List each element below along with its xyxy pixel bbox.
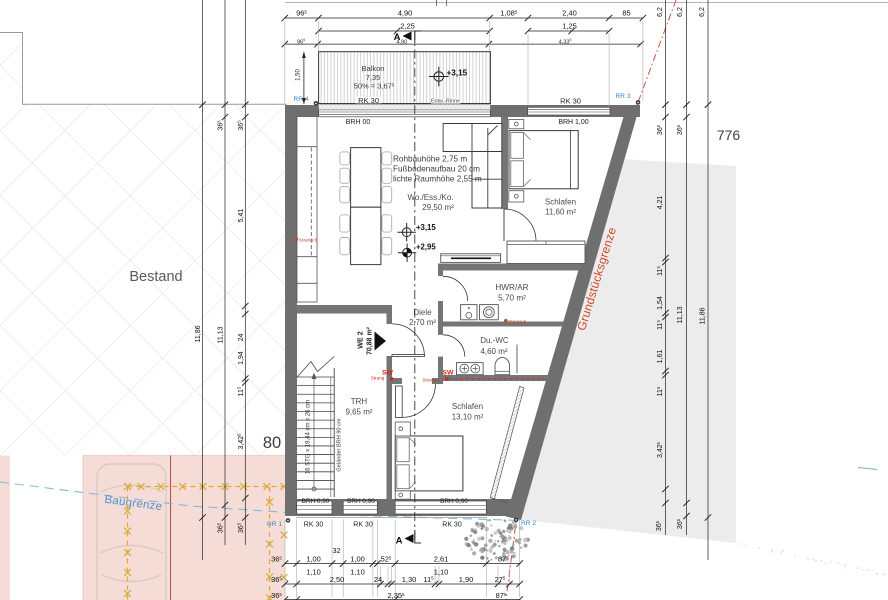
svg-text:+3,15: +3,15 [447,69,468,78]
svg-text:BRH 0,90: BRH 0,90 [347,498,375,505]
svg-text:24: 24 [238,334,245,342]
svg-text:4,90: 4,90 [398,9,413,18]
svg-text:1,10: 1,10 [350,568,365,577]
svg-text:Diele: Diele [413,308,432,317]
svg-text:32: 32 [332,546,340,555]
svg-text:11,13: 11,13 [677,306,684,323]
svg-text:1,54: 1,54 [657,296,664,310]
svg-text:Strang 6: Strang 6 [299,238,317,244]
svg-text:RR 4: RR 4 [293,96,308,103]
svg-text:1,90: 1,90 [459,575,474,584]
svg-text:4,90: 4,90 [396,39,407,45]
svg-text:1,61: 1,61 [657,350,664,364]
svg-text:WE 2: WE 2 [356,331,365,349]
svg-text:5,70 m²: 5,70 m² [498,294,526,303]
svg-text:Strang: Strang [371,376,385,381]
svg-text:1,50: 1,50 [296,69,302,81]
svg-text:1,10: 1,10 [306,568,321,577]
svg-text:TRH: TRH [351,397,368,406]
svg-text:11,13: 11,13 [218,326,225,343]
svg-text:BRH 0,90: BRH 0,90 [440,498,468,505]
svg-text:4,21: 4,21 [657,196,664,210]
svg-text:A: A [396,536,403,547]
svg-text:Entw.-Rinne: Entw.-Rinne [431,99,460,105]
svg-text:Fußbodenaufbau 20 cm: Fußbodenaufbau 20 cm [393,165,480,174]
svg-text:80: 80 [263,434,281,452]
svg-text:BRH 1,00: BRH 1,00 [558,119,588,126]
svg-text:RK 30: RK 30 [560,97,581,106]
svg-text:+3,15: +3,15 [416,223,436,232]
svg-text:1,30: 1,30 [402,575,417,584]
svg-text:Schlafen: Schlafen [452,402,483,411]
svg-text:HWR/AR: HWR/AR [495,283,528,292]
svg-text:6,2: 6,2 [677,7,684,17]
svg-text:9,65 m²: 9,65 m² [345,408,372,417]
svg-text:1,25: 1,25 [562,22,577,31]
svg-text:SW: SW [443,370,455,377]
svg-text:Geländer BRH 90 cm: Geländer BRH 90 cm [337,418,343,472]
svg-text:RK 30: RK 30 [353,522,373,529]
svg-text:Bestand: Bestand [129,269,182,285]
svg-text:Schlafen: Schlafen [545,198,576,207]
svg-text:2,50: 2,50 [330,575,345,584]
svg-text:11,86: 11,86 [700,307,707,324]
svg-text:70,88 m²: 70,88 m² [367,326,374,355]
svg-text:RR 3: RR 3 [615,93,630,100]
svg-text:11,60 m²: 11,60 m² [545,208,576,217]
svg-text:16 STG x 18,44 cm x 26 cm: 16 STG x 18,44 cm x 26 cm [306,400,312,474]
svg-text:RK 30: RK 30 [304,522,324,529]
svg-text:BRH 00: BRH 00 [346,119,371,126]
svg-text:6,2: 6,2 [699,7,706,17]
svg-text:13,10 m²: 13,10 m² [452,413,484,422]
svg-text:lichte Raumhöhe 2,55 m: lichte Raumhöhe 2,55 m [393,175,482,184]
svg-text:1,94: 1,94 [238,351,245,365]
svg-text:29,50 m²: 29,50 m² [422,203,454,212]
svg-text:2,25: 2,25 [400,22,415,31]
svg-text:+2,95: +2,95 [416,243,436,252]
svg-text:2,40: 2,40 [562,9,577,18]
svg-text:5,41: 5,41 [238,209,245,223]
svg-text:RR 1: RR 1 [267,521,282,528]
svg-text:2,70 m²: 2,70 m² [409,318,436,327]
svg-text:BRH 0,90: BRH 0,90 [302,498,330,505]
svg-text:RK 30: RK 30 [442,522,462,529]
svg-text:RR 2: RR 2 [521,520,536,527]
svg-text:1,10: 1,10 [434,568,449,577]
svg-text:Balkon: Balkon [362,64,385,73]
svg-text:11,86: 11,86 [195,325,202,342]
svg-text:1,00: 1,00 [306,555,321,564]
svg-text:4,60 m²: 4,60 m² [480,347,507,356]
svg-text:Strang 4: Strang 4 [422,377,440,382]
svg-text:Rohbauhöhe 2,75 m: Rohbauhöhe 2,75 m [393,155,467,164]
svg-text:85: 85 [622,9,630,18]
svg-text:50% = 3,675: 50% = 3,675 [354,82,395,91]
svg-text:RK 30: RK 30 [358,96,379,105]
svg-text:24: 24 [374,575,382,584]
svg-text:Strang 5: Strang 5 [508,319,526,325]
svg-text:6,2: 6,2 [657,7,664,17]
svg-text:Du.-WC: Du.-WC [480,336,509,345]
svg-text:2,61: 2,61 [434,555,449,564]
svg-text:1,00: 1,00 [350,555,365,564]
svg-text:776: 776 [717,127,741,143]
